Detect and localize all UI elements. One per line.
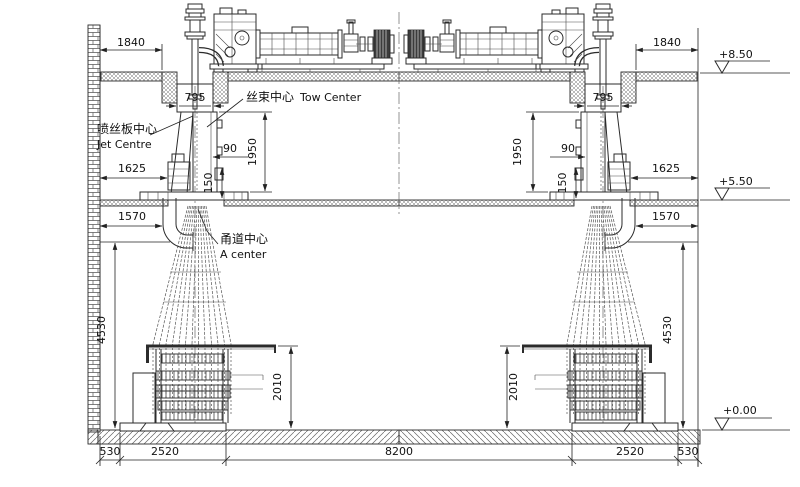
duct-center-label-zh: 甬道中心: [220, 231, 268, 246]
dim-4530-left: 4530: [95, 316, 108, 344]
level-ground-text: +0.00: [723, 404, 757, 417]
dim-150-right: 150: [556, 173, 569, 194]
control-cabinet: [133, 373, 155, 423]
dim-1625-right: 1625: [652, 162, 680, 175]
dim-1570-right: 1570: [652, 210, 680, 223]
dim-150-left: 150: [202, 173, 215, 194]
dim-530-left: 530: [100, 445, 121, 458]
dim-8200: 8200: [385, 445, 413, 458]
level-triangle-icon: [715, 61, 729, 73]
dim-1950-right: 1950: [511, 138, 524, 166]
dim-90-left: 90: [223, 142, 237, 155]
spinning-plant-elevation: +8.50 +5.50 +0.00 丝束中心 Tow Center 喷丝板中心 …: [0, 0, 800, 487]
floor-slab: [98, 430, 399, 444]
dim-530-right: 530: [678, 445, 699, 458]
coupling: [356, 37, 376, 51]
dim-2520-left: 2520: [151, 445, 179, 458]
level-marker-mid: +5.50: [700, 175, 790, 200]
dim-1570-left: 1570: [118, 210, 146, 223]
platform: [140, 192, 248, 200]
dim-90-right: 90: [561, 142, 575, 155]
tow-center-label-en: Tow Center: [299, 91, 362, 104]
dim-795-left: 795: [185, 91, 206, 104]
drive-motor: [372, 30, 394, 64]
dim-1840-left: 1840: [117, 36, 145, 49]
annotations: 丝束中心 Tow Center 喷丝板中心 Jet Centre 甬道中心 A …: [96, 89, 362, 261]
mirrored-half: [399, 4, 702, 466]
left-wall: [88, 25, 100, 432]
dim-1950-left: 1950: [246, 138, 259, 166]
duct-center-label-en: A center: [220, 248, 267, 261]
mid-slab: [100, 200, 399, 206]
level-mid-text: +5.50: [719, 175, 753, 188]
dim-2010-left: 2010: [271, 373, 284, 401]
level-marker-roof: +8.50: [700, 48, 790, 73]
dim-2010-right: 2010: [507, 373, 520, 401]
dim-2520-right: 2520: [616, 445, 644, 458]
elevation-drawing-page: +8.50 +5.50 +0.00 丝束中心 Tow Center 喷丝板中心 …: [0, 0, 800, 487]
jet-center-label-zh: 喷丝板中心: [97, 121, 157, 136]
dim-1840-right: 1840: [653, 36, 681, 49]
melt-pump: [344, 20, 358, 52]
takeup-machine: [120, 346, 276, 431]
tow-center-label-zh: 丝束中心: [246, 89, 294, 104]
level-marker-ground: +0.00: [702, 404, 790, 430]
dim-4530-right: 4530: [661, 316, 674, 344]
floor-left-strip: [88, 430, 98, 444]
level-triangle-icon: [715, 418, 729, 430]
level-roof-text: +8.50: [719, 48, 753, 61]
dim-795-right: 795: [593, 91, 614, 104]
dim-1625-left: 1625: [118, 162, 146, 175]
jet-center-label-en: Jet Centre: [96, 138, 152, 151]
level-triangle-icon: [715, 188, 729, 200]
